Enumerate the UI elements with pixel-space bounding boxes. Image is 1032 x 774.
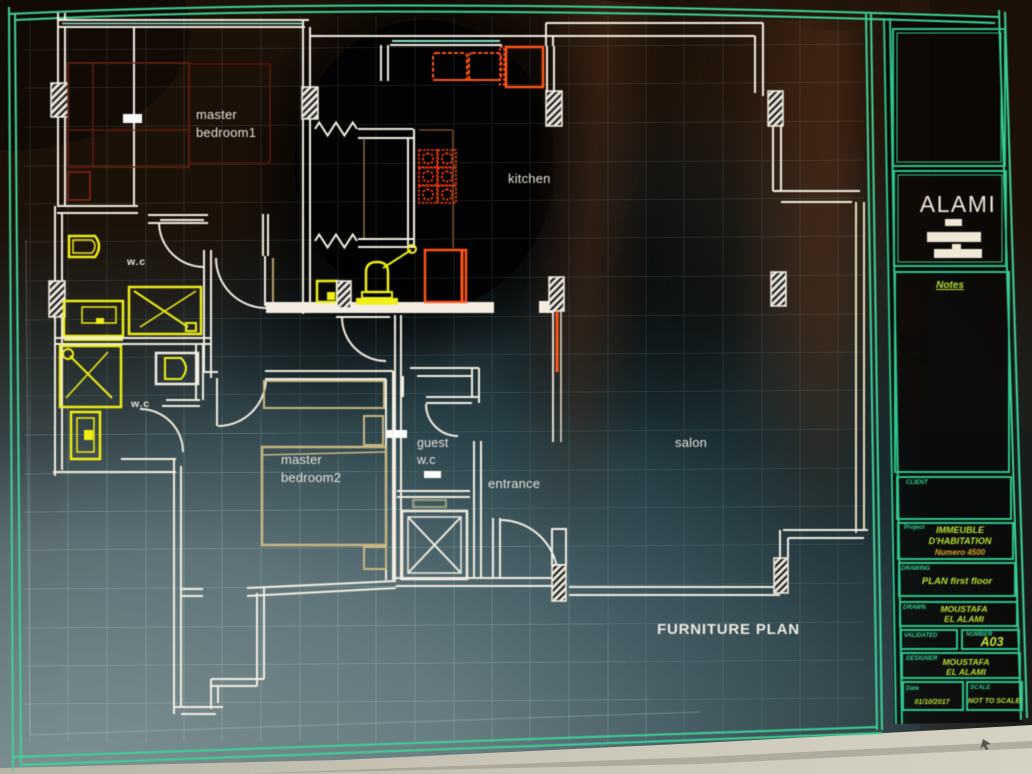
- svg-text:Date: Date: [906, 686, 920, 692]
- svg-text:w.c: w.c: [126, 256, 146, 268]
- svg-text:master: master: [281, 452, 322, 467]
- svg-text:bedroom1: bedroom1: [196, 125, 256, 140]
- svg-text:DRAWING: DRAWING: [901, 566, 930, 572]
- svg-text:w.c: w.c: [130, 398, 150, 410]
- svg-text:DESIGNER: DESIGNER: [906, 656, 938, 662]
- svg-text:Numero 4500: Numero 4500: [935, 548, 986, 557]
- svg-text:PLAN first floor: PLAN first floor: [922, 576, 993, 587]
- svg-text:salon: salon: [675, 435, 707, 450]
- svg-text:EL ALAMI: EL ALAMI: [946, 667, 986, 677]
- svg-text:master: master: [196, 107, 237, 122]
- svg-text:ALAMI: ALAMI: [920, 191, 997, 217]
- svg-text:w.c: w.c: [416, 453, 436, 467]
- svg-text:bedroom2: bedroom2: [281, 470, 341, 485]
- svg-text:DRAWN: DRAWN: [903, 605, 926, 611]
- svg-text:MOUSTAFA: MOUSTAFA: [940, 604, 987, 614]
- svg-text:entrance: entrance: [488, 476, 540, 491]
- svg-text:EL ALAMI: EL ALAMI: [944, 614, 984, 624]
- svg-text:kitchen: kitchen: [508, 171, 551, 186]
- svg-text:Notes: Notes: [936, 280, 964, 291]
- svg-text:FURNITURE PLAN: FURNITURE PLAN: [657, 621, 800, 638]
- svg-text:VALIDATED: VALIDATED: [904, 633, 938, 639]
- svg-text:CLIENT: CLIENT: [906, 480, 929, 486]
- svg-text:SCALE: SCALE: [970, 685, 991, 691]
- svg-text:NOT TO SCALE: NOT TO SCALE: [968, 698, 1020, 705]
- svg-text:A03: A03: [980, 635, 1004, 649]
- svg-text:IMMEUBLE: IMMEUBLE: [936, 525, 985, 535]
- svg-text:MOUSTAFA: MOUSTAFA: [942, 657, 989, 667]
- svg-text:01/10/2017: 01/10/2017: [914, 699, 950, 706]
- svg-text:guest: guest: [417, 436, 449, 450]
- svg-text:D'HABITATION: D'HABITATION: [929, 536, 992, 546]
- svg-text:Project: Project: [904, 525, 925, 531]
